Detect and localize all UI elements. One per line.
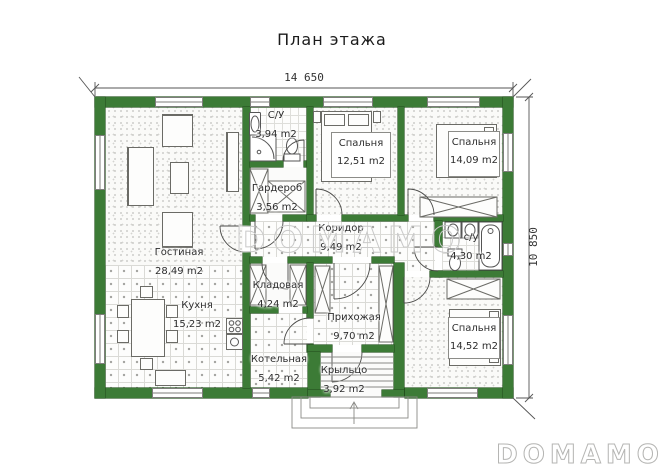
room-label-bedroom-3: Спальня14,52 m2 bbox=[448, 317, 500, 359]
sofa-bottom bbox=[162, 212, 193, 248]
page-title: План этажа bbox=[0, 30, 664, 49]
wall-porch-stub-right bbox=[382, 390, 404, 397]
chair bbox=[166, 330, 178, 343]
window-kitchen-bottom bbox=[152, 388, 203, 398]
brand-logo: DOMAMO bbox=[496, 440, 664, 470]
wall-corridor-south-a bbox=[250, 257, 262, 263]
pillow bbox=[324, 114, 345, 126]
nightstand bbox=[313, 111, 321, 123]
wall-hallway-south-a bbox=[308, 345, 332, 352]
chair bbox=[140, 358, 153, 370]
tv-unit bbox=[226, 132, 239, 192]
room-label-living: Гостиная28,49 m2 bbox=[134, 248, 224, 277]
wall-wardrobe-south-a bbox=[250, 215, 255, 221]
wall-corridor-north-b bbox=[342, 215, 408, 221]
wall-hallway-east bbox=[394, 263, 404, 397]
wall-corridor-south-c bbox=[372, 257, 394, 263]
room-label-wardrobe: Гардероб3,56 m2 bbox=[242, 184, 312, 213]
room-label-porch: Крыльцо3,92 m2 bbox=[308, 366, 380, 395]
wall-between-bedrooms bbox=[398, 107, 404, 215]
floor-plan-sheet: План этажа bbox=[0, 0, 664, 470]
room-label-bathroom-2: с/у4,30 m2 bbox=[441, 233, 501, 262]
room-label-bathroom-1: С/У3,94 m2 bbox=[243, 111, 309, 140]
window-bedroom3-bottom bbox=[427, 388, 478, 398]
window-bath1-top bbox=[250, 97, 270, 107]
pillow bbox=[348, 114, 369, 126]
dimension-width-label: 14 650 bbox=[284, 71, 324, 84]
room-label-bedroom-1: Спальня12,51 m2 bbox=[331, 132, 391, 178]
wall-bath1-south-a bbox=[250, 161, 283, 167]
dimension-height-label: 10 850 bbox=[527, 227, 540, 267]
chair bbox=[117, 305, 129, 318]
window-bedroom1-top bbox=[323, 97, 373, 107]
room-label-hallway: Прихожая9,70 m2 bbox=[314, 313, 394, 342]
window-bedroom2-top bbox=[427, 97, 480, 107]
wall-corridor-north-a bbox=[307, 215, 316, 221]
room-label-corridor: Коридор9,49 m2 bbox=[300, 224, 382, 253]
room-label-storage: Кладовая4,24 m2 bbox=[238, 281, 318, 310]
chair bbox=[140, 286, 153, 298]
window-bath2-right bbox=[503, 243, 513, 256]
window-bedroom3-right bbox=[503, 315, 513, 365]
room-label-kitchen: Кухня15,23 m2 bbox=[152, 301, 242, 330]
window-living-left bbox=[95, 135, 105, 190]
coffee-table bbox=[170, 162, 189, 194]
kitchen-oven bbox=[155, 370, 186, 386]
window-boiler-bottom bbox=[252, 388, 270, 398]
wall-bath2-south bbox=[430, 271, 503, 277]
window-kitchen-left bbox=[95, 314, 105, 364]
sofa-left bbox=[127, 147, 154, 206]
window-bedroom2-right bbox=[503, 133, 513, 172]
chair bbox=[117, 330, 129, 343]
room-label-bedroom-2: Спальня14,09 m2 bbox=[448, 131, 500, 177]
sofa-top bbox=[162, 114, 193, 147]
wall-hallway-south-b bbox=[362, 345, 394, 352]
wall-corridor-north-c bbox=[434, 215, 503, 221]
nightstand bbox=[373, 111, 381, 123]
kitchen-sink bbox=[226, 334, 243, 350]
wall-wardrobe-south-b bbox=[283, 215, 307, 221]
window-living-top bbox=[155, 97, 203, 107]
